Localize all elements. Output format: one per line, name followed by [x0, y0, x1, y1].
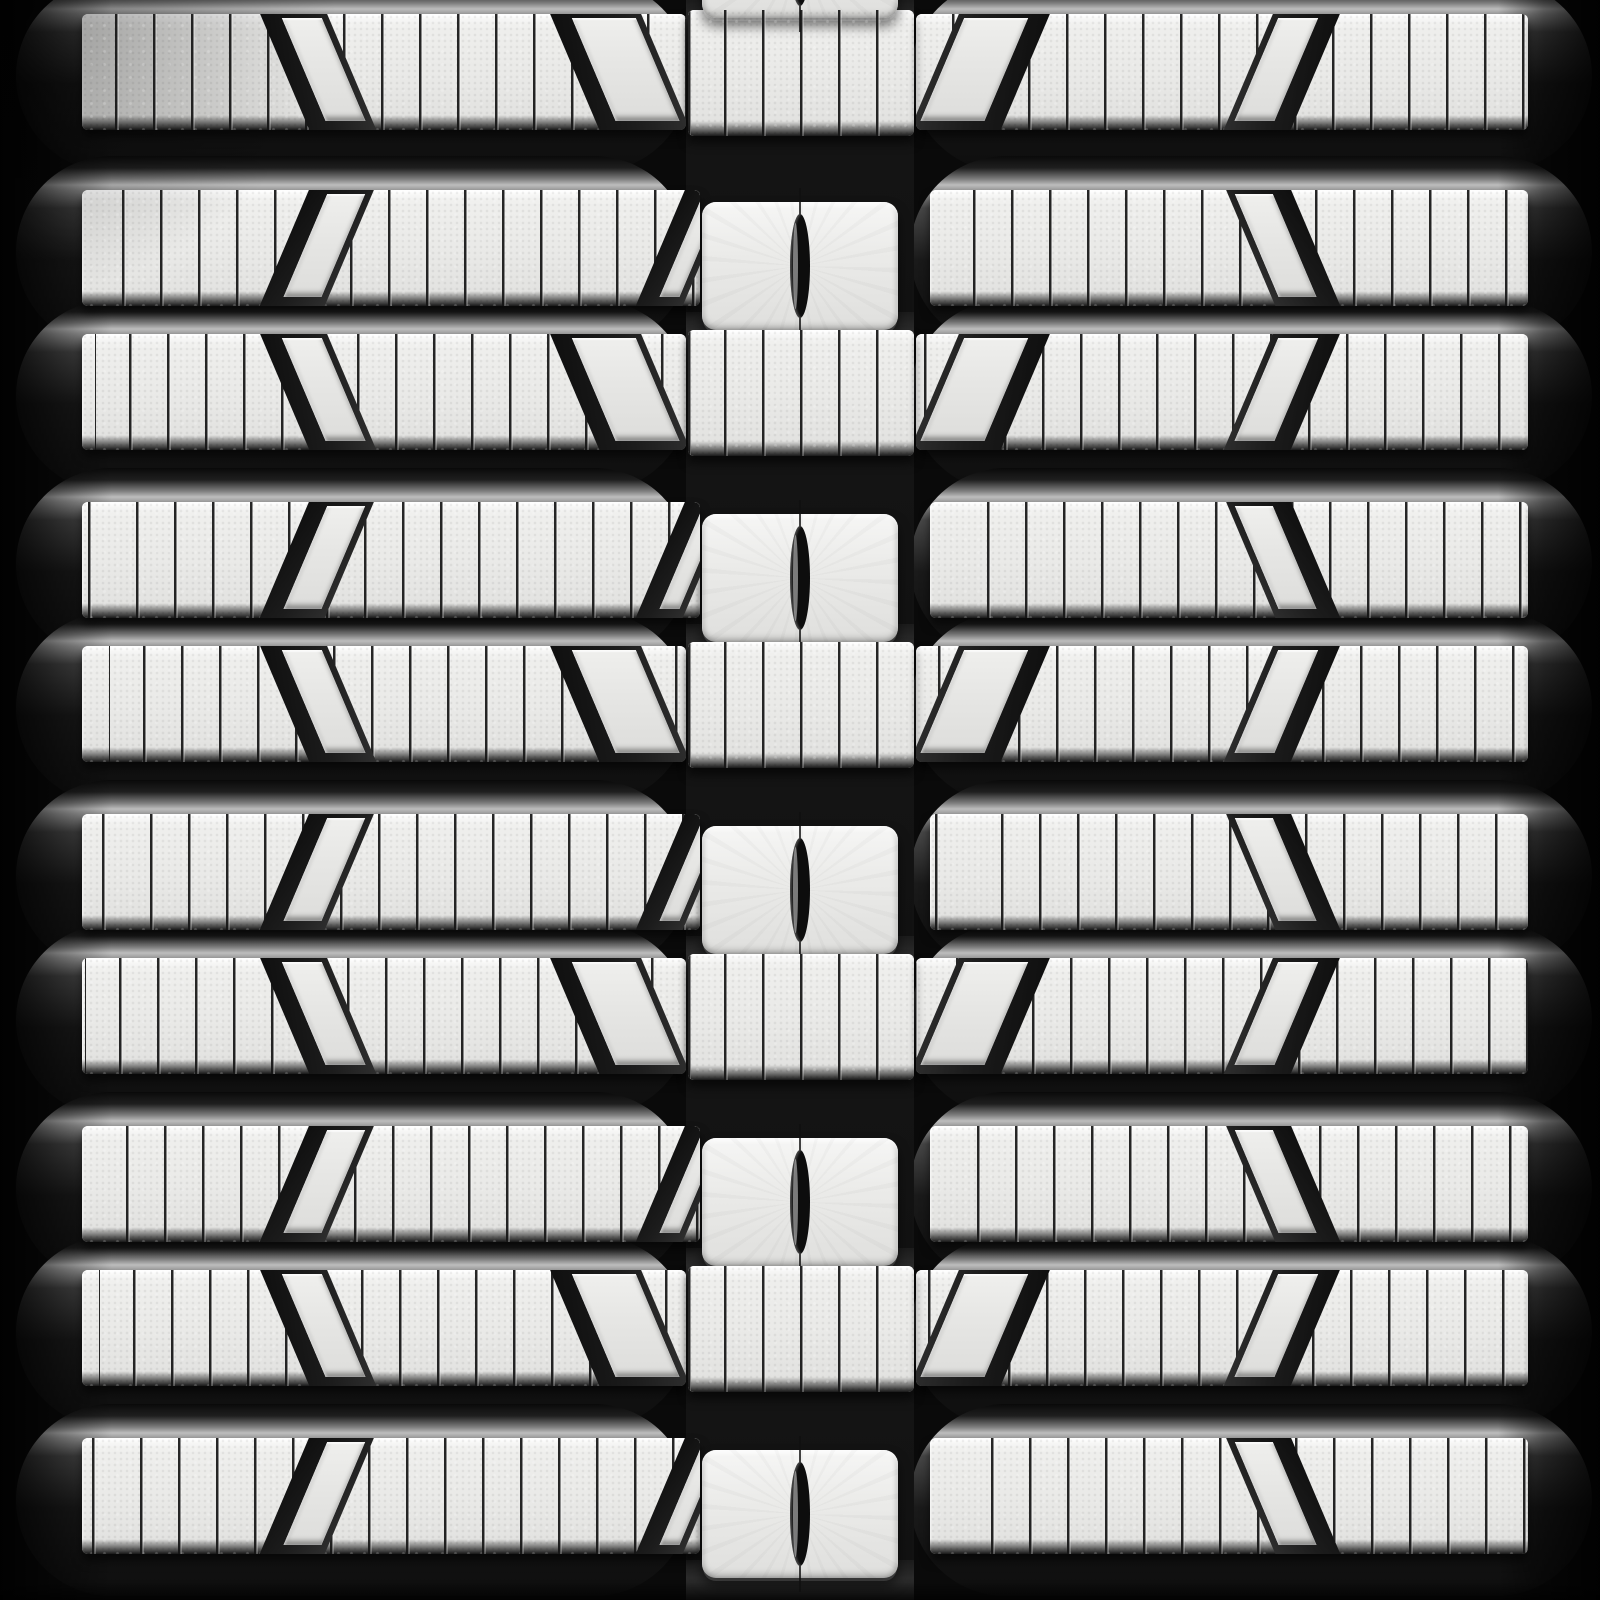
sipe-grooves [82, 1438, 700, 1554]
rubber-track-photo [0, 0, 1600, 1600]
tread-bar-left [82, 190, 700, 306]
tread-bar-right [916, 958, 1528, 1074]
tread-bar-right [916, 646, 1528, 762]
tread-bar-left [82, 334, 686, 450]
tread-bar-right [916, 1270, 1528, 1386]
tread-bar-left [82, 502, 700, 618]
sipe-grooves [688, 1266, 914, 1392]
sipe-grooves [688, 642, 914, 768]
sipe-grooves [82, 814, 700, 930]
center-tread-section [688, 10, 914, 136]
tread-bar-right [930, 502, 1528, 618]
sipe-grooves [930, 1126, 1528, 1242]
tread-bar-right [916, 14, 1528, 130]
tread-bar-right [930, 814, 1528, 930]
center-tread-section [688, 1266, 914, 1392]
tread-bar-right [930, 1438, 1528, 1554]
sipe-grooves [930, 814, 1528, 930]
sipe-grooves [688, 10, 914, 136]
tread-bar-left [82, 1438, 700, 1554]
sipe-grooves [688, 330, 914, 456]
center-tread-section [688, 330, 914, 456]
center-tread-section [688, 642, 914, 768]
sipe-grooves [930, 190, 1528, 306]
tread-bar-left [82, 814, 700, 930]
sipe-grooves [82, 1126, 700, 1242]
sipe-grooves [930, 502, 1528, 618]
tread-bar-left [82, 1270, 686, 1386]
tread-bar-left [82, 646, 686, 762]
sipe-grooves [930, 1438, 1528, 1554]
tread-bar-right [916, 334, 1528, 450]
sipe-grooves [82, 502, 700, 618]
center-tread-section [688, 954, 914, 1080]
tread-bar-right [930, 190, 1528, 306]
tread-bar-left [82, 958, 686, 1074]
sipe-grooves [82, 190, 700, 306]
tread-bar-left [82, 1126, 700, 1242]
sipe-grooves [688, 954, 914, 1080]
tread-bar-left [82, 14, 686, 130]
tread-bar-right [930, 1126, 1528, 1242]
